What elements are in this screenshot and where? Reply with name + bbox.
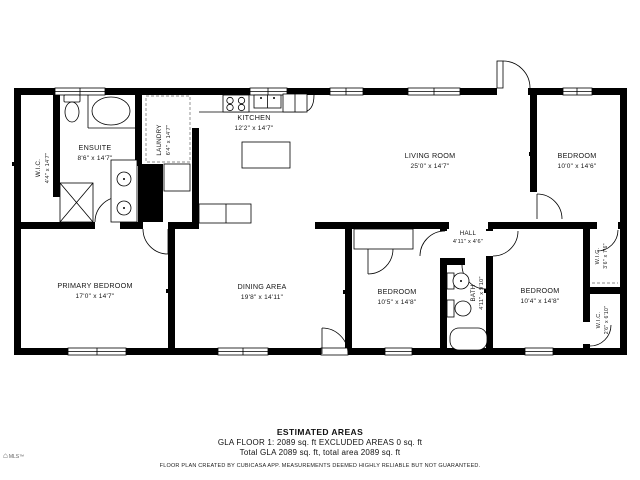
window-living-1 bbox=[330, 88, 363, 95]
svg-text:4'11" x 4'6": 4'11" x 4'6" bbox=[453, 239, 483, 245]
house-icon: ⌂ bbox=[3, 452, 8, 460]
svg-text:DINING AREA: DINING AREA bbox=[237, 282, 286, 291]
svg-text:10'0" x 14'6": 10'0" x 14'6" bbox=[558, 163, 597, 170]
window-bedroom-top-right bbox=[563, 88, 592, 95]
svg-text:4'4" x 14'7": 4'4" x 14'7" bbox=[45, 153, 51, 184]
svg-text:3'6" x 7'6": 3'6" x 7'6" bbox=[603, 243, 609, 268]
toilet-icon bbox=[64, 95, 80, 122]
svg-text:PRIMARY BEDROOM: PRIMARY BEDROOM bbox=[57, 281, 132, 290]
closet-door-bedroom-bottom-left bbox=[368, 249, 393, 274]
svg-text:BEDROOM: BEDROOM bbox=[378, 287, 417, 296]
bedroom-top-right-door bbox=[537, 194, 562, 219]
bedroom-bottom-left-door bbox=[420, 231, 445, 256]
svg-text:W.I.C.: W.I.C. bbox=[596, 311, 602, 328]
svg-text:BATH: BATH bbox=[470, 284, 477, 301]
sink-icon bbox=[254, 95, 281, 108]
room-label-wic1: W.I.C. 4'4" x 14'7" bbox=[35, 153, 51, 184]
svg-text:6'4" x 14'7": 6'4" x 14'7" bbox=[166, 125, 172, 156]
room-label-laundry: LAUNDRY 6'4" x 14'7" bbox=[156, 124, 172, 155]
footer-title: ESTIMATED AREAS bbox=[0, 427, 640, 438]
svg-text:19'8" x 14'11": 19'8" x 14'11" bbox=[241, 294, 284, 301]
window-living-2 bbox=[408, 88, 460, 95]
room-label-bath: BATH 4'11" x 9'10" bbox=[470, 276, 485, 310]
room-label-wic3: W.I.C. 2'6" x 6'10" bbox=[596, 306, 610, 335]
svg-text:10'4" x 14'8": 10'4" x 14'8" bbox=[521, 298, 560, 305]
svg-text:BEDROOM: BEDROOM bbox=[521, 286, 560, 295]
room-label-bedroom-bottom-right: BEDROOM 10'4" x 14'8" bbox=[521, 286, 560, 305]
svg-text:KITCHEN: KITCHEN bbox=[237, 113, 270, 122]
svg-text:4'11" x 9'10": 4'11" x 9'10" bbox=[479, 276, 485, 310]
footer-total-line: Total GLA 2089 sq. ft, total area 2089 s… bbox=[0, 448, 640, 458]
window-bedroom-bottom-left bbox=[385, 348, 412, 355]
mls-logo: ⌂ MLS™ bbox=[3, 452, 24, 460]
footer-gla-line: GLA FLOOR 1: 2089 sq. ft EXCLUDED AREAS … bbox=[0, 438, 640, 448]
svg-text:8'6" x 14'7": 8'6" x 14'7" bbox=[77, 155, 112, 162]
double-vanity-icon bbox=[111, 160, 137, 222]
estimated-areas-footer: ESTIMATED AREAS GLA FLOOR 1: 2089 sq. ft… bbox=[0, 427, 640, 469]
svg-text:LAUNDRY: LAUNDRY bbox=[156, 124, 163, 155]
svg-text:17'0" x 14'7": 17'0" x 14'7" bbox=[76, 293, 115, 300]
window-bedroom-bottom-right bbox=[525, 348, 553, 355]
room-label-hall: HALL 4'11" x 4'6" bbox=[453, 230, 483, 245]
interior-walls bbox=[12, 95, 627, 348]
floor-plan-drawing: W.I.C. 4'4" x 14'7" ENSUITE 8'6" x 14'7"… bbox=[0, 0, 640, 480]
bath-sink-icon bbox=[447, 273, 469, 289]
room-label-primary: PRIMARY BEDROOM 17'0" x 14'7" bbox=[57, 281, 132, 300]
room-label-living: LIVING ROOM 25'0" x 14'7" bbox=[405, 151, 456, 170]
fridge-icon bbox=[283, 94, 307, 112]
svg-text:W.I.C.: W.I.C. bbox=[595, 247, 601, 264]
svg-text:LIVING ROOM: LIVING ROOM bbox=[405, 151, 456, 160]
svg-text:25'0" x 14'7": 25'0" x 14'7" bbox=[411, 163, 450, 170]
svg-text:ENSUITE: ENSUITE bbox=[79, 143, 112, 152]
bath-toilet-icon bbox=[447, 300, 471, 317]
lower-cabinet bbox=[199, 204, 251, 223]
closet-bedroom-bottom-left bbox=[354, 229, 413, 249]
floor-plan-page: W.I.C. 4'4" x 14'7" ENSUITE 8'6" x 14'7"… bbox=[0, 0, 640, 480]
bath-tub-icon bbox=[450, 328, 487, 350]
svg-text:W.I.C.: W.I.C. bbox=[35, 159, 42, 177]
room-label-kitchen: KITCHEN 12'2" x 14'7" bbox=[235, 113, 274, 132]
utility-block bbox=[138, 164, 163, 222]
svg-text:10'5" x 14'8": 10'5" x 14'8" bbox=[378, 299, 417, 306]
primary-bedroom-door bbox=[143, 229, 168, 254]
room-label-bedroom-bottom-left: BEDROOM 10'5" x 14'8" bbox=[378, 287, 417, 306]
window-kitchen bbox=[250, 88, 287, 95]
window-ensuite bbox=[55, 88, 105, 95]
bathtub-icon bbox=[88, 95, 135, 128]
svg-text:BEDROOM: BEDROOM bbox=[558, 151, 597, 160]
island bbox=[242, 142, 290, 168]
svg-text:HALL: HALL bbox=[460, 230, 477, 237]
svg-text:2'6" x 6'10": 2'6" x 6'10" bbox=[604, 306, 610, 335]
window-dining bbox=[218, 348, 268, 355]
room-label-ensuite: ENSUITE 8'6" x 14'7" bbox=[77, 143, 112, 162]
dining-exterior-door bbox=[321, 328, 348, 355]
window-primary bbox=[68, 348, 126, 355]
mls-logo-text: MLS™ bbox=[9, 454, 24, 460]
footer-disclaimer: FLOOR PLAN CREATED BY CUBICASA APP. MEAS… bbox=[0, 463, 640, 469]
washer-icon bbox=[164, 164, 190, 191]
room-label-dining: DINING AREA 19'8" x 14'11" bbox=[237, 282, 286, 301]
bedroom-bottom-right-door bbox=[493, 231, 518, 256]
svg-text:12'2" x 14'7": 12'2" x 14'7" bbox=[235, 125, 274, 132]
front-door bbox=[497, 61, 530, 88]
stove-icon bbox=[223, 95, 249, 112]
shower-icon bbox=[60, 183, 93, 222]
room-label-wic2: W.I.C. 3'6" x 7'6" bbox=[595, 243, 609, 268]
room-label-bedroom-top-right: BEDROOM 10'0" x 14'6" bbox=[558, 151, 597, 170]
